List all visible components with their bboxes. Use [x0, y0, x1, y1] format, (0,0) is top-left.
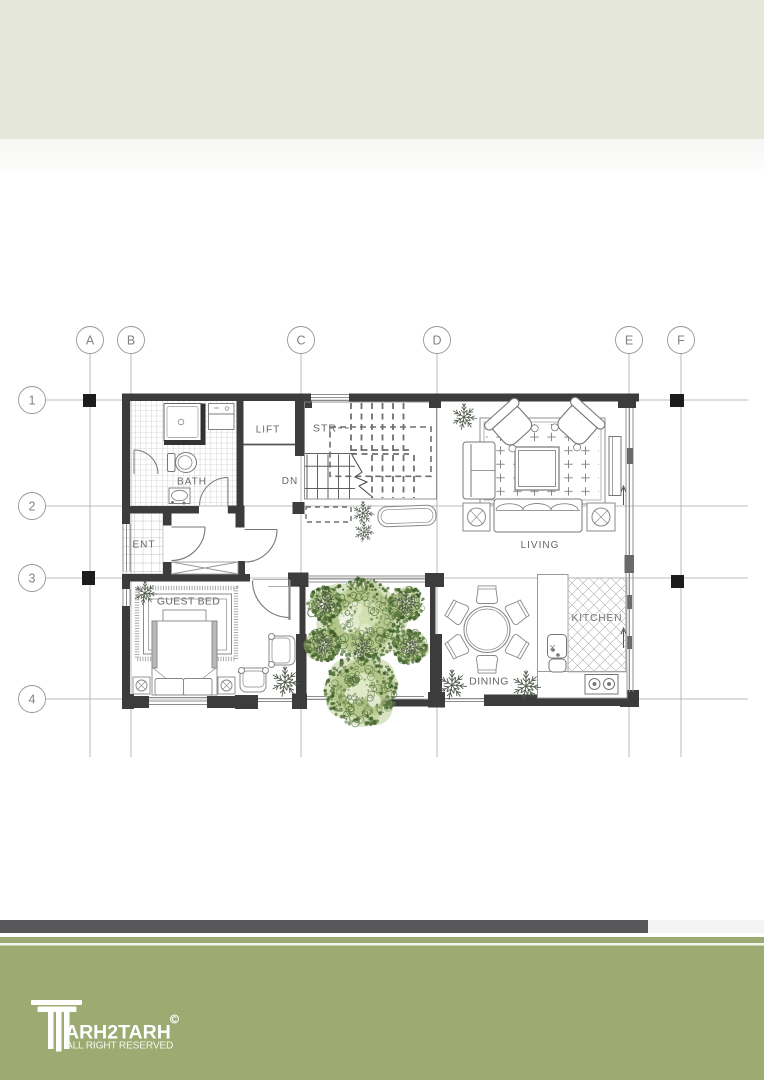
svg-text:C: C	[296, 334, 305, 348]
svg-text:1: 1	[29, 394, 36, 408]
svg-text:2: 2	[29, 500, 36, 514]
svg-text:DINING: DINING	[469, 676, 509, 688]
svg-text:A: A	[86, 334, 95, 348]
svg-text:D: D	[432, 334, 441, 348]
svg-text:E: E	[625, 334, 633, 348]
svg-text:DN: DN	[282, 476, 298, 487]
svg-text:BATH: BATH	[177, 477, 207, 488]
svg-text:3: 3	[29, 572, 36, 586]
svg-text:LIFT: LIFT	[256, 425, 281, 436]
svg-text:GUEST BED: GUEST BED	[157, 596, 220, 608]
svg-text:LIVING: LIVING	[521, 540, 560, 551]
svg-text:ENT: ENT	[133, 540, 156, 551]
svg-text:ALL RIGHT RESERVED: ALL RIGHT RESERVED	[66, 1041, 173, 1052]
svg-text:4: 4	[29, 693, 36, 707]
svg-text:B: B	[127, 334, 135, 348]
svg-text:STR: STR	[313, 423, 337, 435]
svg-text:F: F	[677, 334, 685, 348]
